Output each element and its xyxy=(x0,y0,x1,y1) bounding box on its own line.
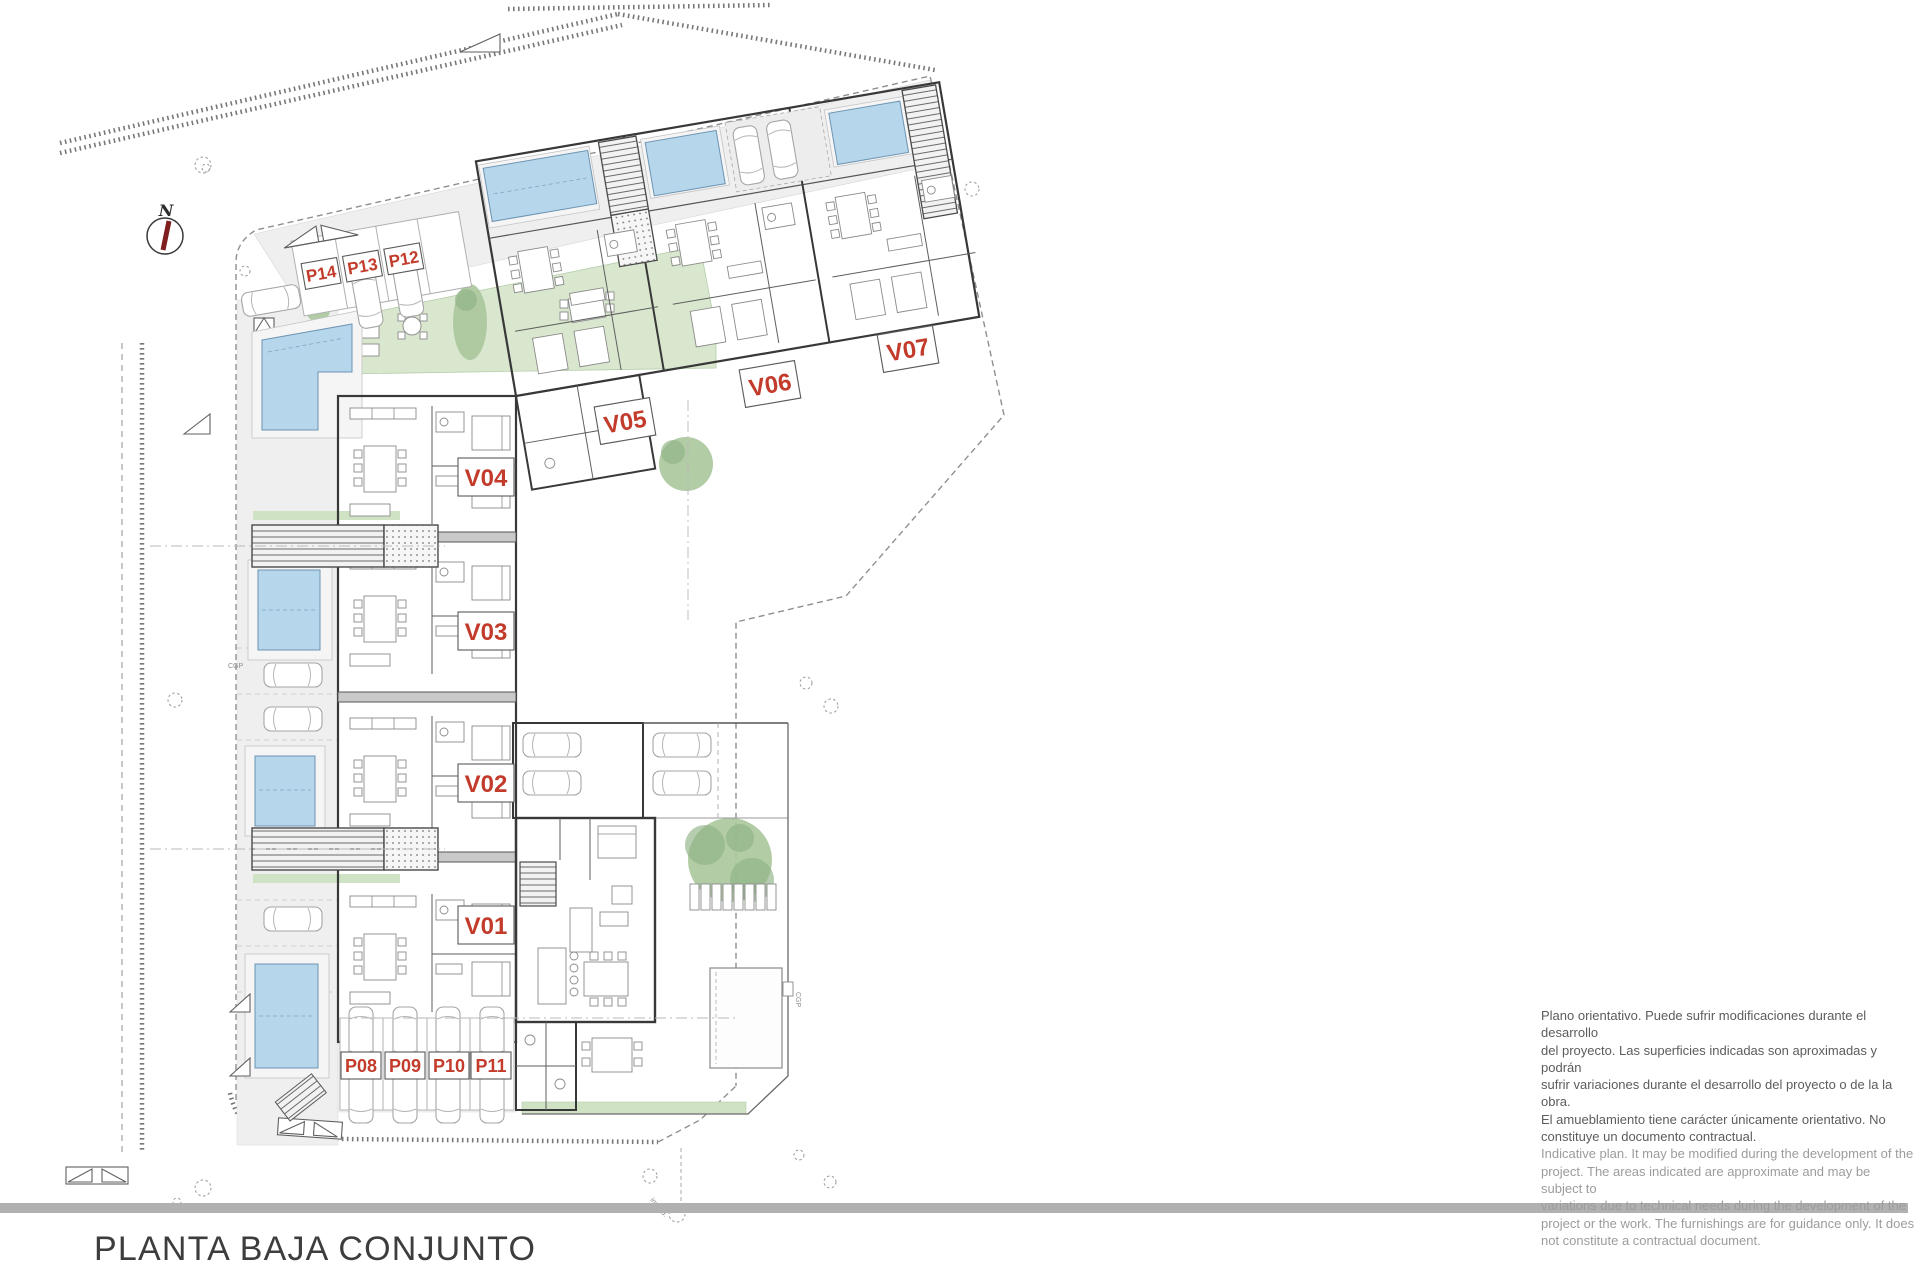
parking-label-p08: P08 xyxy=(341,1052,381,1079)
unit-label-v03: V03 xyxy=(458,612,514,650)
disclaimer-block: Plano orientativo. Puede sufrir modifica… xyxy=(1541,1007,1915,1249)
disclaimer-es-line: sufrir variaciones durante el desarrollo… xyxy=(1541,1076,1915,1111)
svg-text:P11: P11 xyxy=(475,1056,506,1076)
svg-text:P10: P10 xyxy=(433,1056,465,1076)
parking-label-p10: P10 xyxy=(429,1052,469,1079)
disclaimer-es-line: del proyecto. Las superficies indicadas … xyxy=(1541,1042,1915,1077)
svg-text:V04: V04 xyxy=(465,465,508,492)
tree-icon xyxy=(659,437,713,491)
pool xyxy=(255,756,315,826)
disclaimer-en-line: project. The areas indicated are approxi… xyxy=(1541,1163,1915,1198)
cgp-annotation: CGP xyxy=(228,663,244,670)
entrance-gate-icon xyxy=(66,1167,128,1184)
unit-label-v05: V05 xyxy=(594,398,656,445)
floor-plan-sheet: P14 P13 P12 P08 P09 P10 P11 xyxy=(0,0,1920,1280)
page-title: PLANTA BAJA CONJUNTO xyxy=(94,1230,536,1269)
svg-text:V03: V03 xyxy=(465,619,508,646)
parking-label-p12: P12 xyxy=(384,243,424,275)
parking-label-p13: P13 xyxy=(342,250,382,282)
svg-text:P08: P08 xyxy=(345,1056,377,1076)
communal-clubhouse xyxy=(516,818,655,1022)
north-compass: N xyxy=(147,201,183,254)
svg-text:P09: P09 xyxy=(389,1056,421,1076)
tree-icon xyxy=(453,284,487,360)
pool xyxy=(645,130,725,195)
parking-label-p11: P11 xyxy=(471,1052,511,1079)
disclaimer-en-line: Indicative plan. It may be modified duri… xyxy=(1541,1145,1915,1162)
unit-label-v02: V02 xyxy=(458,764,514,802)
unit-label-v06: V06 xyxy=(739,361,801,408)
svg-text:V02: V02 xyxy=(465,771,508,798)
north-label: N xyxy=(158,201,175,220)
disclaimer-es-line: El amueblamiento tiene carácter únicamen… xyxy=(1541,1111,1915,1128)
disclaimer-es-line: Plano orientativo. Puede sufrir modifica… xyxy=(1541,1007,1915,1042)
interior-dashed-guides xyxy=(340,400,736,1018)
parking-label-p09: P09 xyxy=(385,1052,425,1079)
pool xyxy=(258,570,320,650)
unit-label-v04: V04 xyxy=(458,458,514,496)
parking-label-p14: P14 xyxy=(301,257,341,289)
parking-stalls-bottom: P08 P09 P10 P11 xyxy=(340,1007,514,1123)
disclaimer-en-line: not constitute a contractual document. xyxy=(1541,1232,1915,1249)
clubhouse-annex xyxy=(516,1022,642,1110)
svg-text:V01: V01 xyxy=(465,913,508,940)
unit-label-v01: V01 xyxy=(458,906,514,944)
communal-garage xyxy=(513,723,788,818)
disclaimer-es-line: constituye un documento contractual. xyxy=(1541,1128,1915,1145)
cgp-annotation: CGP xyxy=(794,992,801,1008)
disclaimer-en-line: project or the work. The furnishings are… xyxy=(1541,1215,1915,1232)
disclaimer-en-line: variations due to technical needs during… xyxy=(1541,1197,1915,1214)
